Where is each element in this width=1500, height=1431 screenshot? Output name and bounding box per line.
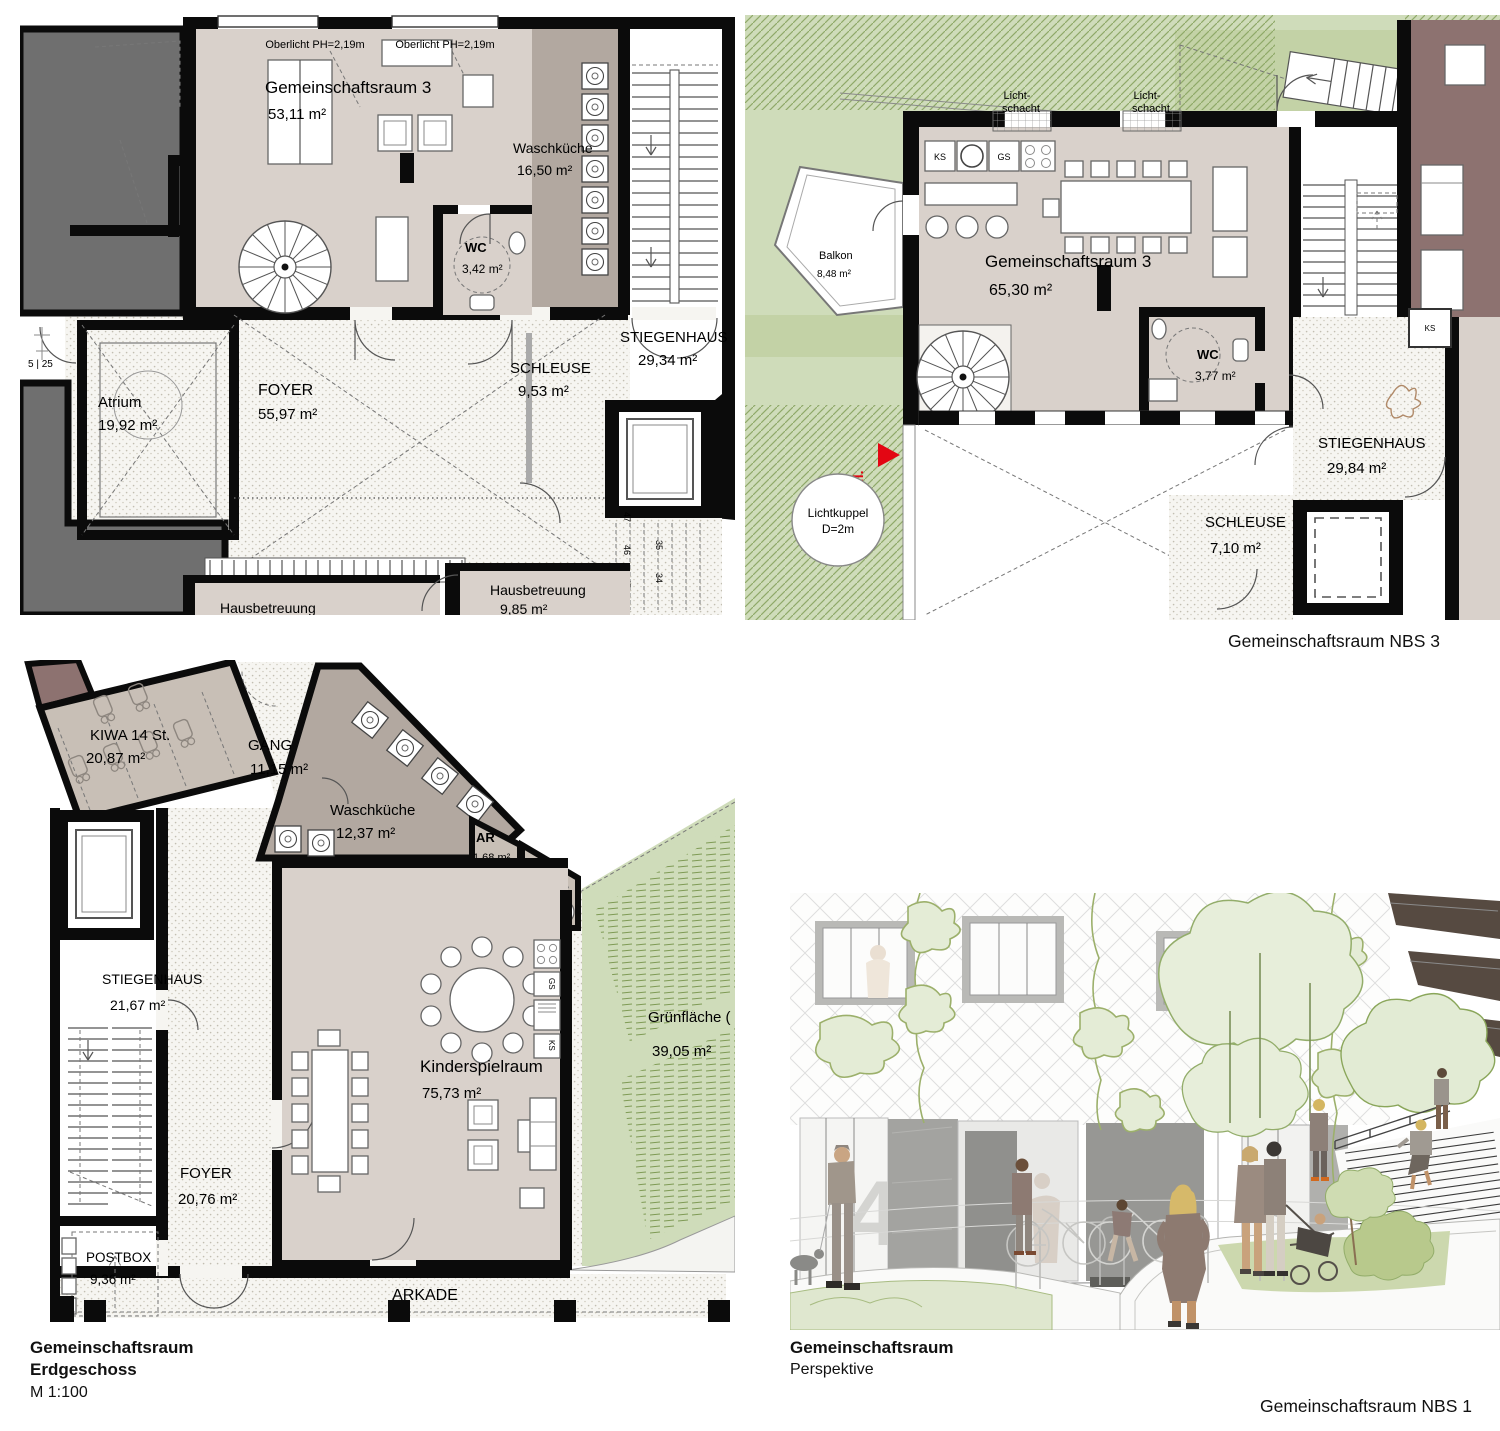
label-atrium-name: Atrium	[98, 394, 141, 411]
label-gruenflaeche-area: 39,05 m²	[652, 1043, 711, 1060]
concrete-pier	[888, 1119, 958, 1279]
label-oberlicht-left: Oberlicht PH=2,19m	[265, 39, 364, 51]
label-stiegenhaus-area: 29,34 m²	[638, 352, 697, 369]
label-waschkueche-name: Waschküche	[513, 140, 593, 156]
window-person-silhouette	[870, 945, 886, 961]
label-waschkueche-area: 16,50 m²	[517, 162, 573, 178]
stairwell-right	[1301, 127, 1397, 317]
label-lichtkuppel-l1: Lichtkuppel	[808, 506, 869, 520]
column	[84, 1300, 106, 1322]
dining-table	[1043, 161, 1191, 253]
stairwell-right	[628, 25, 722, 315]
perspective-figure: 4	[790, 893, 1500, 1330]
lichtkuppel: Lichtkuppel D=2m	[792, 474, 884, 566]
elevator-icon	[1293, 500, 1403, 615]
caption-nbs1: Gemeinschaftsraum NBS 1	[1260, 1396, 1472, 1417]
caption-plan-erdgeschoss: Gemeinschaftsraum Erdgeschoss M 1:100	[30, 1337, 193, 1403]
label-kiwa-name: KIWA 14 St.	[90, 727, 170, 744]
label-lichtschacht1-l2: schacht	[1002, 103, 1040, 115]
label-kinderspielraum-name: Kinderspielraum	[420, 1057, 543, 1076]
label-mark: 5 | 25	[28, 359, 53, 370]
label-postbox-area: 9,36 m²	[90, 1272, 136, 1287]
label-arkade: ARKADE	[392, 1287, 458, 1304]
caption-plan-title: Gemeinschaftsraum	[30, 1337, 193, 1359]
label-oberlicht-right: Oberlicht PH=2,19m	[395, 39, 494, 51]
label-lichtkuppel-l2: D=2m	[822, 522, 854, 536]
spiral-stair-icon	[239, 221, 331, 313]
column	[554, 1300, 576, 1322]
label-gemeinschaftsraum-name: Gemeinschaftsraum 3	[265, 78, 431, 97]
label-lichtschacht2-l1: Licht-	[1134, 90, 1161, 102]
label-wc-name: WC	[1197, 347, 1219, 362]
step-number: 34	[654, 573, 664, 583]
caption-plan-scale: M 1:100	[30, 1382, 193, 1403]
label-ar-name: AR	[476, 830, 495, 845]
label-hausbetreuung-name: Hausbetreuung	[490, 582, 586, 598]
step-number: 35	[654, 540, 664, 550]
label-gang-area: 11,15 m²	[250, 761, 308, 778]
step-number: 47	[622, 512, 632, 522]
drawing-sheet: 47 46 45 35 34 Oberlicht PH=2,19m Oberli…	[0, 0, 1500, 1431]
room-wc: WC 3,77 m²	[1139, 307, 1265, 411]
plan-top-left-figure: 47 46 45 35 34 Oberlicht PH=2,19m Oberli…	[20, 15, 735, 615]
label-foyer-name: FOYER	[180, 1165, 232, 1182]
label-gemeinschaftsraum-area: 65,30 m²	[989, 282, 1053, 299]
label-hausbetreuung-left: Hausbetreuung	[220, 600, 316, 615]
room-wc	[433, 205, 532, 315]
label-kiwa-area: 20,87 m²	[86, 750, 145, 767]
label-stiegenhaus-name: STIEGENHAUS	[102, 971, 202, 987]
label-schleuse-name: SCHLEUSE	[1205, 514, 1286, 531]
label-schleuse-area: 9,53 m²	[518, 383, 569, 400]
washing-machine-icons	[582, 63, 608, 275]
plan-top-right-figure: Balkon 8,48 m² Licht- schacht Licht- sch…	[745, 15, 1500, 620]
label-stiegenhaus-area: 29,84 m²	[1327, 460, 1386, 477]
window	[962, 916, 1064, 1003]
caption-nbs3: Gemeinschaftsraum NBS 3	[1228, 631, 1440, 652]
window	[815, 921, 915, 1005]
label-waschkueche-name: Waschküche	[330, 802, 415, 819]
label-balkon-area: 8,48 m²	[817, 269, 852, 280]
label-gs: GS	[547, 978, 556, 990]
armchair	[1213, 237, 1247, 277]
label-wc-name: WC	[465, 240, 487, 255]
step-number: 46	[622, 545, 632, 555]
label-wc-area: 3,42 m²	[462, 262, 503, 276]
label-hausbetreuung-area: 9,85 m²	[500, 601, 548, 615]
label-gemeinschaftsraum-area: 53,11 m²	[268, 106, 326, 123]
label-postbox-name: POSTBOX	[86, 1250, 151, 1265]
plan-bottom-left-figure: Grünfläche ( 39,05 m² KIWA 14 St. 20,87 …	[20, 660, 735, 1330]
label-gs: GS	[997, 152, 1010, 162]
label-gemeinschaftsraum-name: Gemeinschaftsraum 3	[985, 252, 1151, 271]
label-foyer-name: FOYER	[258, 382, 313, 399]
caption-plan-level: Erdgeschoss	[30, 1359, 193, 1381]
label-lichtschacht1-l1: Licht-	[1004, 90, 1031, 102]
label-atrium-area: 19,92 m²	[98, 417, 157, 434]
label-lichtschacht2-l2: schacht	[1132, 103, 1170, 115]
caption-perspective: Gemeinschaftsraum Perspektive	[790, 1337, 953, 1381]
label-waschkueche-area: 12,37 m²	[336, 825, 395, 842]
caption-persp-title: Gemeinschaftsraum	[790, 1337, 953, 1359]
room-kinderspielraum: GS KS Kinderspielraum 75,73 m²	[272, 858, 572, 1272]
label-ks: KS	[934, 152, 946, 162]
label-ks-neighbor: KS	[1425, 324, 1436, 333]
sofa	[1213, 167, 1247, 231]
caption-persp-sub: Perspektive	[790, 1359, 953, 1380]
label-ks: KS	[547, 1040, 556, 1051]
elevator-icon	[54, 810, 154, 940]
label-gruenflaeche-name: Grünfläche (	[648, 1009, 731, 1026]
label-schleuse-area: 7,10 m²	[1210, 540, 1261, 557]
spiral-stair-icon	[917, 331, 1009, 423]
label-wc-area: 3,77 m²	[1195, 369, 1236, 383]
label-foyer-area: 55,97 m²	[258, 406, 317, 423]
label-schleuse-name: SCHLEUSE	[510, 360, 591, 377]
label-kinderspielraum-area: 75,73 m²	[422, 1085, 481, 1102]
column	[708, 1300, 730, 1322]
label-gang-name: GANG	[248, 737, 292, 754]
label-stiegenhaus-name: STIEGENHAUS	[620, 329, 728, 346]
label-foyer-area: 20,76 m²	[178, 1191, 237, 1208]
label-stiegenhaus-area: 21,67 m²	[110, 997, 166, 1013]
label-stiegenhaus-name: STIEGENHAUS	[1318, 435, 1426, 452]
elevator-icon	[605, 383, 735, 520]
label-balkon-name: Balkon	[819, 250, 853, 262]
